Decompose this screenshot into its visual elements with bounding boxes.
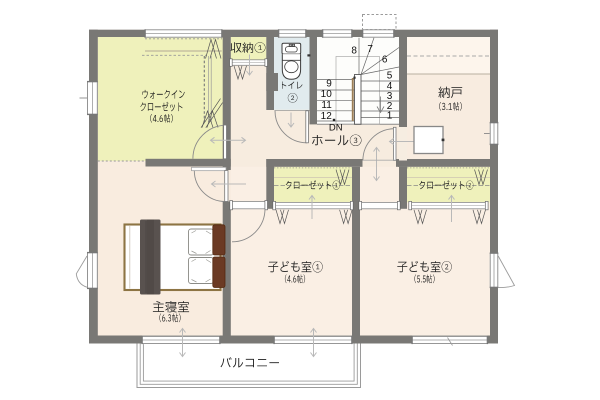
svg-text:8: 8 (351, 46, 357, 57)
svg-text:10: 10 (321, 89, 333, 100)
svg-text:9: 9 (326, 79, 332, 90)
svg-text:6: 6 (382, 55, 388, 66)
svg-text:1: 1 (387, 110, 393, 121)
svg-text:DN: DN (329, 123, 343, 134)
svg-text:12: 12 (321, 111, 333, 122)
svg-text:7: 7 (367, 44, 373, 55)
svg-text:5: 5 (387, 71, 393, 82)
svg-text:11: 11 (321, 100, 332, 111)
